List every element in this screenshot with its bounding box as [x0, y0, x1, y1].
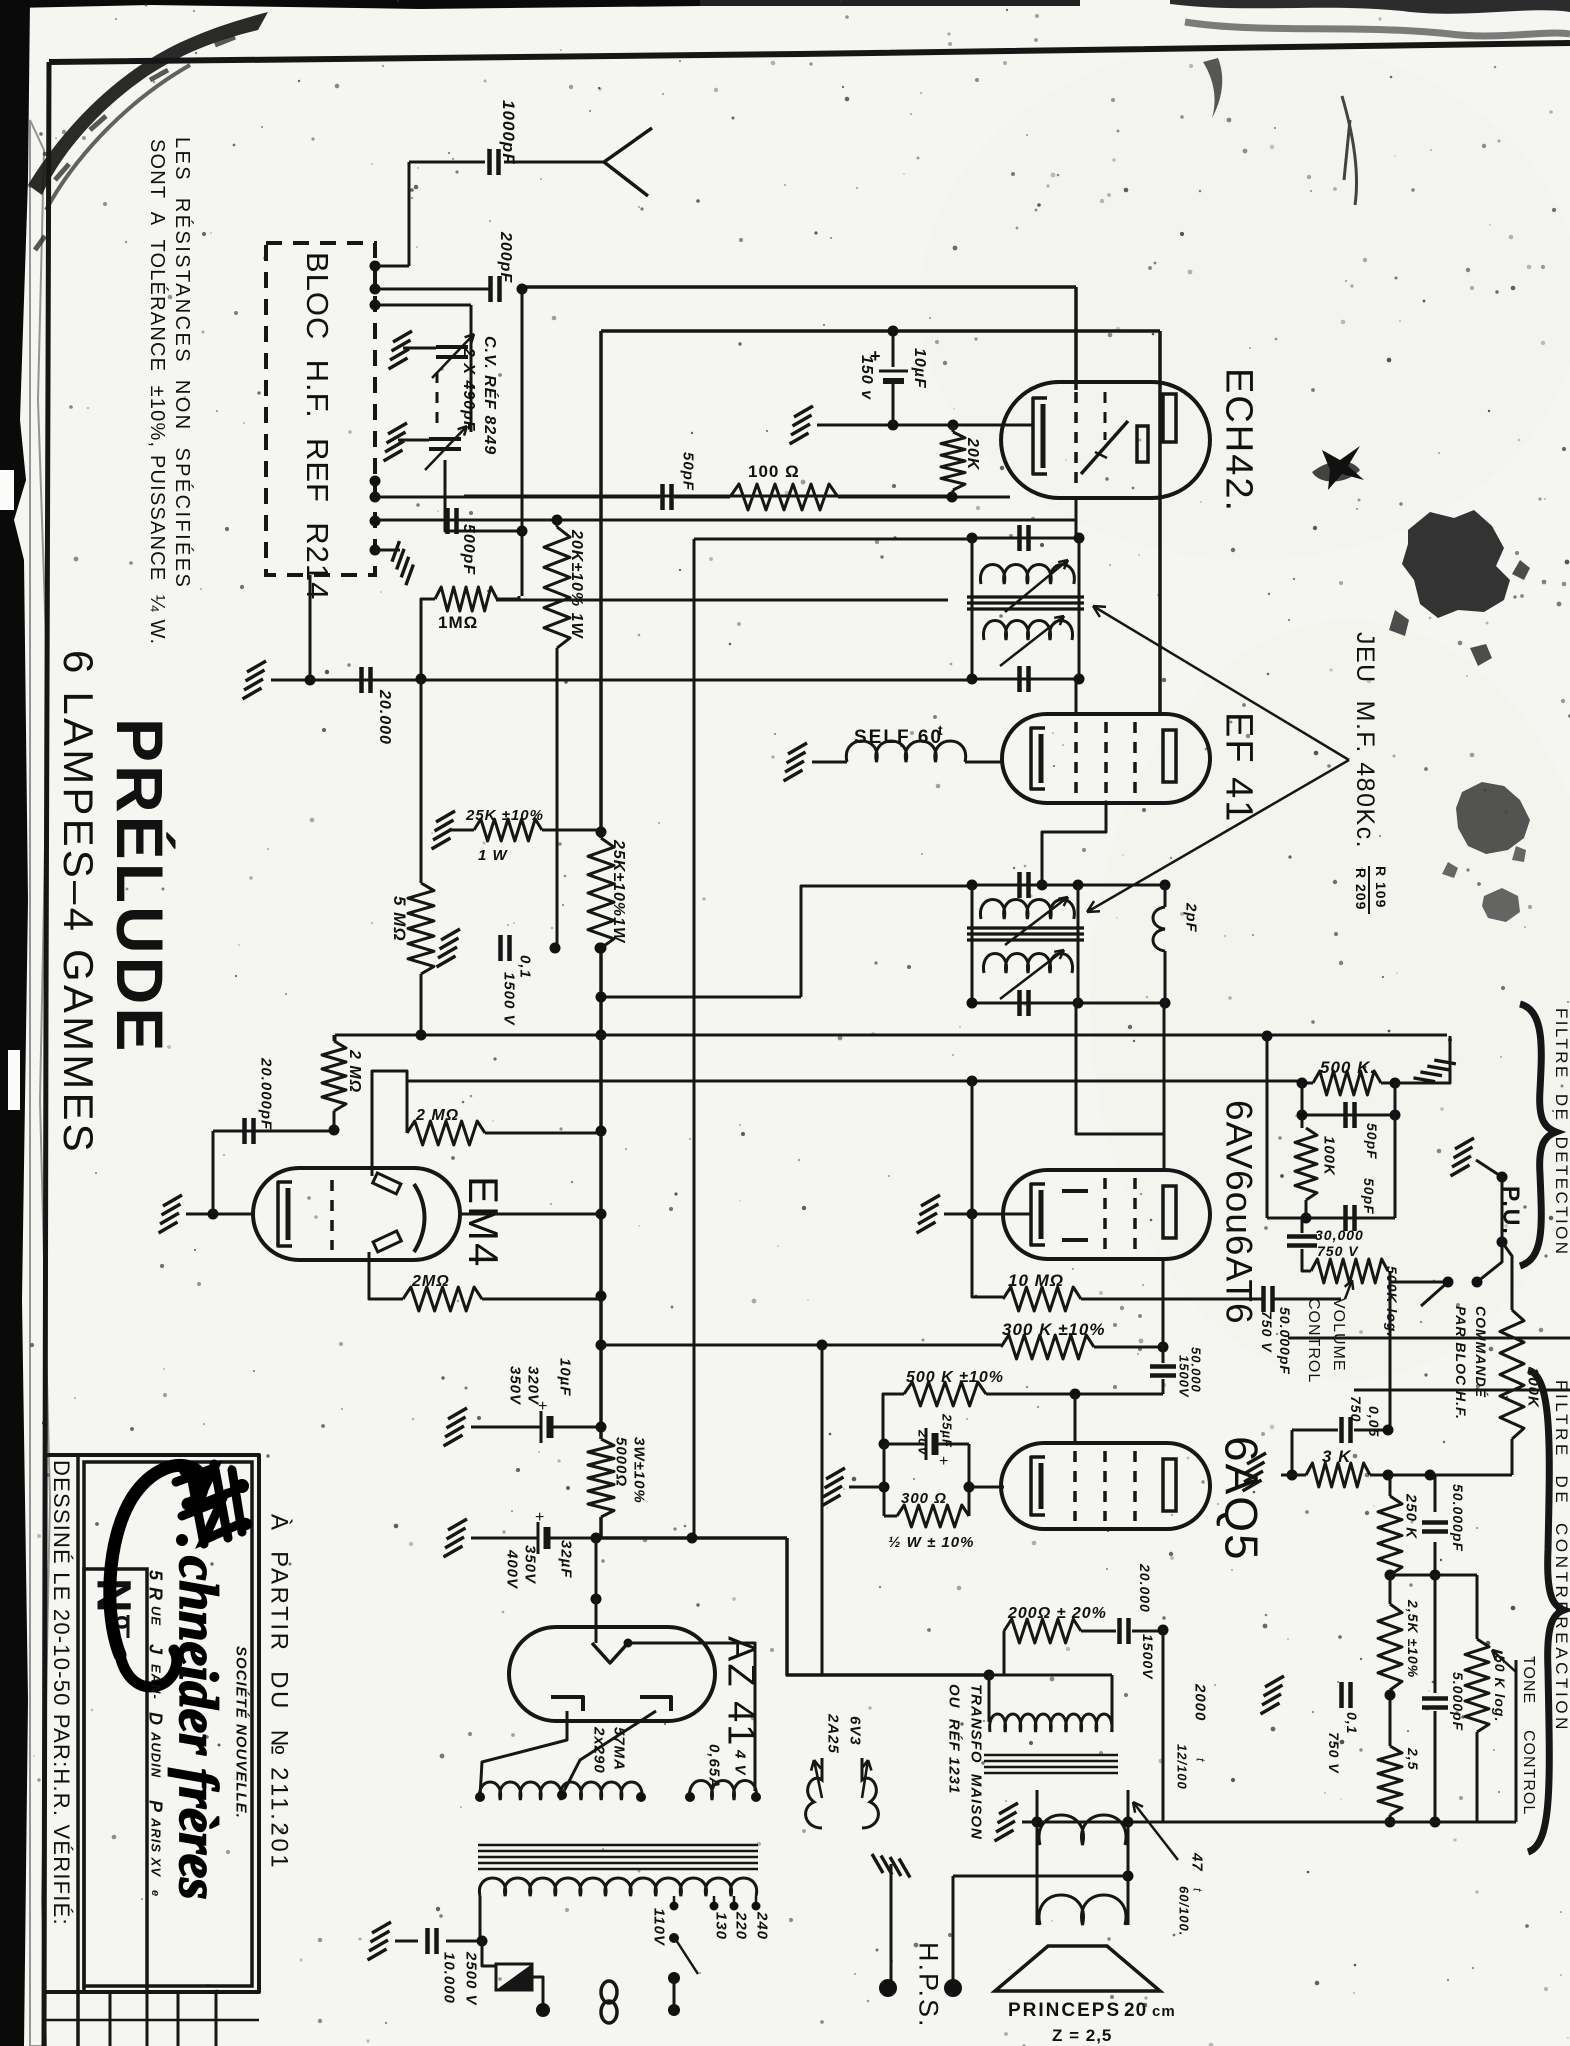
svg-text:TRANSFO MAISON: TRANSFO MAISON	[968, 1684, 985, 1840]
svg-text:750 V: 750 V	[1317, 1243, 1359, 1259]
svg-text:SOCIÉTÉ NOUVELLE.: SOCIÉTÉ NOUVELLE.	[233, 1646, 250, 1819]
svg-text:750 V: 750 V	[1259, 1311, 1275, 1353]
svg-text:130: 130	[713, 1912, 730, 1940]
svg-text:1500V: 1500V	[1140, 1634, 1156, 1680]
svg-text:5 R: 5 R	[146, 1570, 166, 1601]
svg-text:110V: 110V	[651, 1908, 668, 1947]
svg-text:J: J	[146, 1638, 166, 1655]
svg-text:TONE: TONE	[1520, 1656, 1537, 1704]
svg-text:200Ω ± 20%: 200Ω ± 20%	[1007, 1605, 1107, 1622]
svg-text:LES RÉSISTANCES NON SPÉCIFI: LES RÉSISTANCES NON SPÉCIFIÉES	[171, 137, 194, 589]
svg-text:10.000: 10.000	[441, 1952, 458, 2004]
svg-text:47: 47	[1189, 1852, 1206, 1872]
svg-text:PRINCEPS: PRINCEPS	[1008, 2000, 1121, 2021]
svg-text:ARIS XV: ARIS XV	[148, 1817, 163, 1877]
svg-text:2 MΩ: 2 MΩ	[346, 1049, 363, 1093]
svg-text:2pF: 2pF	[1183, 902, 1200, 933]
svg-text:t: t	[1194, 1758, 1208, 1762]
svg-text:JEU M.F. 480Kc.: JEU M.F. 480Kc.	[1351, 632, 1379, 849]
svg-text:750 V: 750 V	[1326, 1732, 1342, 1774]
svg-text:60/100.: 60/100.	[1176, 1886, 1191, 1936]
svg-text:20K: 20K	[964, 437, 981, 471]
svg-text:2,5: 2,5	[1405, 1747, 1421, 1770]
svg-text:250 K: 250 K	[1403, 1493, 1420, 1539]
svg-text:50.000pF: 50.000pF	[1277, 1307, 1293, 1375]
svg-text:5000Ω: 5000Ω	[613, 1437, 630, 1487]
svg-text:2 MΩ: 2 MΩ	[415, 1107, 459, 1124]
svg-text:320V: 320V	[525, 1366, 542, 1406]
svg-text:À PARTIR DU № 211.201: À PARTIR DU № 211.201	[265, 1514, 292, 1870]
svg-text:2A25: 2A25	[825, 1713, 842, 1754]
svg-text:1500 V: 1500 V	[501, 972, 518, 1027]
svg-text:PRÉLUDE: PRÉLUDE	[103, 718, 177, 1054]
svg-text:FILTRE DE CONTREREACTION: FILTRE DE CONTREREACTION	[1552, 1380, 1570, 1733]
svg-text:2 X 490pF: 2 X 490pF	[460, 347, 477, 432]
svg-text:3 K: 3 K	[1322, 1447, 1352, 1466]
svg-text:220: 220	[733, 1911, 750, 1940]
svg-text:500pF: 500pF	[460, 524, 477, 575]
svg-text:Z = 2,5: Z = 2,5	[1052, 2026, 1112, 2045]
svg-text:6AV6ou6AT6: 6AV6ou6AT6	[1219, 1100, 1260, 1325]
svg-text:2x290: 2x290	[591, 1726, 608, 1774]
svg-text:32µF: 32µF	[558, 1540, 575, 1579]
svg-text:20V: 20V	[915, 1429, 930, 1456]
svg-text:2000: 2000	[1192, 1683, 1209, 1721]
svg-text:500K log.: 500K log.	[1384, 1266, 1400, 1337]
svg-text:FILTRE DE DETECTION: FILTRE DE DETECTION	[1552, 1008, 1570, 1256]
svg-text:P: P	[146, 1800, 166, 1813]
svg-text:5.000pF: 5.000pF	[1450, 1672, 1466, 1731]
svg-text:300 Ω: 300 Ω	[901, 1490, 947, 1507]
svg-text:BLOC H.F. REF R214: BLOC H.F. REF R214	[300, 252, 335, 600]
svg-text:OU RÉF 1231: OU RÉF 1231	[946, 1684, 963, 1794]
svg-text:0,05: 0,05	[1366, 1406, 1382, 1437]
svg-text:C.V. RÉF 8249: C.V. RÉF 8249	[481, 336, 500, 455]
svg-text:AUDIN: AUDIN	[148, 1731, 163, 1778]
svg-text:5 MΩ: 5 MΩ	[390, 896, 409, 942]
svg-text:100 Ω: 100 Ω	[748, 462, 800, 481]
svg-text:50.000pF: 50.000pF	[1450, 1484, 1466, 1552]
svg-text:50pF: 50pF	[1364, 1123, 1380, 1160]
svg-text:3W±10%: 3W±10%	[631, 1437, 648, 1504]
svg-text:t: t	[938, 722, 944, 738]
svg-text:25K ±10%: 25K ±10%	[465, 807, 544, 824]
svg-text:20.000: 20.000	[1137, 1563, 1153, 1613]
svg-text:2MΩ: 2MΩ	[411, 1273, 450, 1290]
svg-text:SONT A TOLÉRANCE ±10%, PUIS: SONT A TOLÉRANCE ±10%, PUISSANCE ¼ W.	[146, 139, 169, 645]
svg-text:25K±10%1W: 25K±10%1W	[610, 839, 627, 944]
svg-text:t: t	[1191, 1888, 1205, 1892]
svg-text:PAR BLOC H.F.: PAR BLOC H.F.	[1453, 1306, 1469, 1420]
svg-text:20K±10% 1W: 20K±10% 1W	[568, 529, 585, 640]
svg-text:+: +	[535, 1509, 544, 1526]
svg-text:1 W: 1 W	[478, 847, 509, 864]
svg-text:2500 V: 2500 V	[463, 1951, 480, 2007]
svg-text:25µF: 25µF	[939, 1413, 954, 1448]
svg-text:0,1: 0,1	[517, 955, 534, 979]
svg-text:30,000: 30,000	[1315, 1227, 1364, 1243]
svg-text:R 209: R 209	[1353, 868, 1369, 910]
svg-text:350V: 350V	[507, 1366, 524, 1406]
svg-text:EM4: EM4	[460, 1176, 507, 1268]
svg-text:1MΩ: 1MΩ	[438, 613, 478, 632]
svg-text:10µF: 10µF	[557, 1358, 574, 1397]
svg-text:VOLUME: VOLUME	[1330, 1298, 1347, 1372]
svg-text:1000pF: 1000pF	[499, 100, 518, 165]
svg-text:6 LAMPES–4 GAMMES: 6 LAMPES–4 GAMMES	[55, 650, 102, 1155]
svg-text:6AQ5: 6AQ5	[1215, 1436, 1267, 1562]
svg-text:50pF: 50pF	[1361, 1178, 1377, 1215]
svg-text:UE: UE	[148, 1606, 163, 1626]
svg-text:100K: 100K	[1321, 1136, 1338, 1176]
svg-text:H.P.S.: H.P.S.	[913, 1942, 943, 2029]
svg-text:10µF: 10µF	[911, 348, 928, 389]
svg-text:20.000pF: 20.000pF	[258, 1057, 275, 1130]
svg-text:cm: cm	[1152, 2003, 1176, 2020]
svg-text:50pF: 50pF	[680, 452, 697, 491]
svg-text:e: e	[149, 1890, 161, 1897]
svg-text:57MA: 57MA	[611, 1727, 628, 1771]
svg-text:20: 20	[1124, 2000, 1147, 2021]
svg-text:20.000: 20.000	[376, 689, 393, 745]
svg-text:ECH42.: ECH42.	[1217, 368, 1259, 513]
svg-text:240: 240	[754, 1911, 771, 1940]
svg-text:350V: 350V	[522, 1545, 539, 1585]
svg-text:½ W ± 10%: ½ W ± 10%	[888, 1534, 974, 1551]
svg-text:500 K.: 500 K.	[1320, 1058, 1376, 1077]
svg-text:4 V: 4 V	[732, 1749, 749, 1777]
svg-text:CONTROL: CONTROL	[1305, 1298, 1322, 1383]
svg-text:+: +	[939, 1453, 948, 1470]
svg-text:DESSINÉ LE 20-10-50 PAR:H.R. V: DESSINÉ LE 20-10-50 PAR:H.R. VÉRIFIÉ:	[49, 1460, 74, 1926]
svg-text:2,5K ±10%: 2,5K ±10%	[1405, 1599, 1421, 1678]
svg-text:150 v: 150 v	[858, 355, 875, 400]
svg-text:500 K ±10%: 500 K ±10%	[906, 1369, 1004, 1386]
svg-text:0,1: 0,1	[1344, 1712, 1360, 1734]
svg-text:R 109: R 109	[1373, 866, 1389, 908]
svg-text:6V3: 6V3	[847, 1716, 864, 1746]
svg-text:chneider frères: chneider frères	[168, 1556, 229, 1900]
svg-text:EF 41: EF 41	[1217, 712, 1259, 823]
svg-text:300 K ±10%: 300 K ±10%	[1002, 1320, 1105, 1339]
svg-text:CONTROL: CONTROL	[1520, 1730, 1537, 1815]
svg-text:1500V: 1500V	[1176, 1355, 1191, 1398]
svg-text:EAN-: EAN-	[148, 1664, 163, 1700]
svg-text:12/100: 12/100	[1174, 1744, 1189, 1790]
svg-text:D: D	[146, 1712, 166, 1726]
svg-text:COMMANDÉ: COMMANDÉ	[1473, 1306, 1489, 1398]
svg-text:50 K log.: 50 K log.	[1492, 1655, 1508, 1722]
svg-text:200pF: 200pF	[497, 231, 514, 283]
svg-text:10 MΩ: 10 MΩ	[1008, 1271, 1064, 1290]
svg-text:400V: 400V	[504, 1549, 521, 1590]
svg-text:750: 750	[1348, 1396, 1364, 1422]
